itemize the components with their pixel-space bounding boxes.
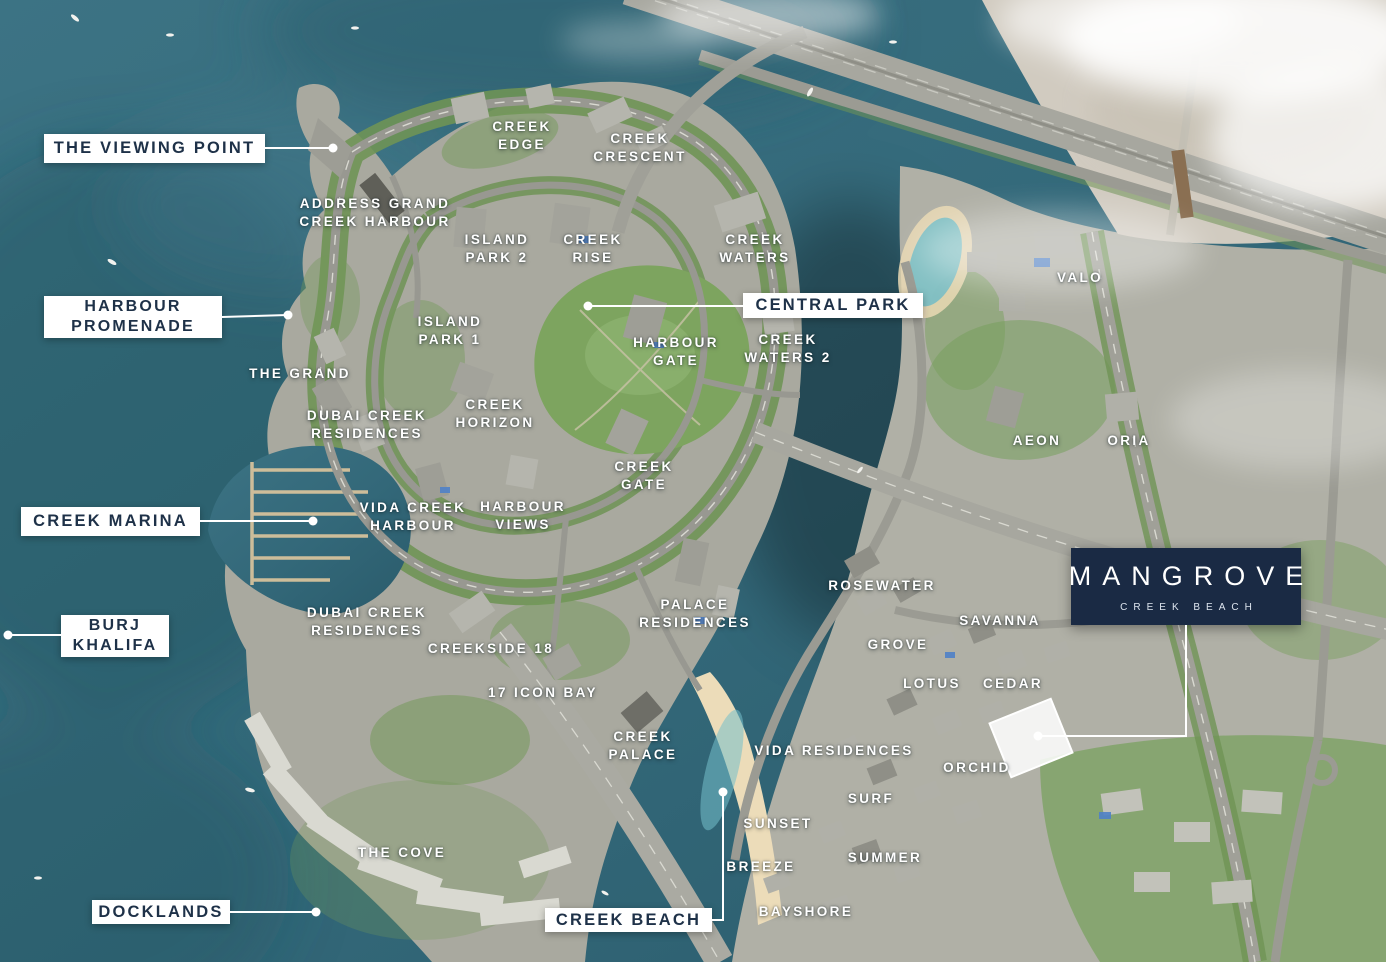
map-area-label-lotus: LOTUS	[903, 675, 961, 693]
masterplan-map: MANGROVE CREEK BEACH CREEK EDGECREEK CRE…	[0, 0, 1386, 962]
callout-creek-beach: CREEK BEACH	[545, 908, 712, 932]
map-area-label-aeon: AEON	[1013, 432, 1062, 450]
map-area-label-oria: ORIA	[1107, 432, 1150, 450]
map-area-label-address-grand-creek-harbour: ADDRESS GRAND CREEK HARBOUR	[299, 195, 450, 231]
map-area-label-palace-residences: PALACE RESIDENCES	[639, 596, 751, 632]
map-area-label-cedar: CEDAR	[983, 675, 1043, 693]
map-area-label-creek-waters-2: CREEK WATERS 2	[744, 331, 831, 367]
map-area-label-vida-residences: VIDA RESIDENCES	[754, 742, 913, 760]
map-area-label-creek-rise: CREEK RISE	[563, 231, 622, 267]
callout-central-park: CENTRAL PARK	[743, 293, 923, 318]
map-area-label-orchid: ORCHID	[943, 759, 1011, 777]
map-area-label-harbour-views: HARBOUR VIEWS	[480, 498, 566, 534]
labels-layer: MANGROVE CREEK BEACH CREEK EDGECREEK CRE…	[0, 0, 1386, 962]
mangrove-logo-box: MANGROVE CREEK BEACH	[1071, 548, 1301, 625]
map-area-label-rosewater: ROSEWATER	[828, 577, 936, 595]
map-area-label-dubai-creek-residences-south: DUBAI CREEK RESIDENCES	[307, 604, 427, 640]
map-area-label-grove: GROVE	[868, 636, 929, 654]
map-area-label-creek-edge: CREEK EDGE	[492, 118, 551, 154]
map-area-label-the-grand: THE GRAND	[249, 365, 351, 383]
callout-creek-marina: CREEK MARINA	[21, 507, 200, 536]
map-area-label-island-park-2: ISLAND PARK 2	[465, 231, 530, 267]
map-area-label-17-icon-bay: 17 ICON BAY	[488, 684, 598, 702]
map-area-label-savanna: SAVANNA	[959, 612, 1041, 630]
map-area-label-creek-palace: CREEK PALACE	[609, 728, 678, 764]
map-area-label-bayshore: BAYSHORE	[759, 903, 853, 921]
map-area-label-sunset: SUNSET	[743, 815, 812, 833]
map-area-label-the-cove: THE COVE	[358, 844, 446, 862]
map-area-label-summer: SUMMER	[848, 849, 922, 867]
callout-harbour-promenade: HARBOUR PROMENADE	[44, 296, 222, 338]
map-area-label-island-park-1: ISLAND PARK 1	[418, 313, 483, 349]
map-area-label-surf: SURF	[848, 790, 894, 808]
mangrove-logo-subtitle: CREEK BEACH	[1114, 602, 1258, 613]
callout-docklands: DOCKLANDS	[92, 900, 230, 924]
map-area-label-creekside-18: CREEKSIDE 18	[428, 640, 554, 658]
map-area-label-harbour-gate: HARBOUR GATE	[633, 334, 719, 370]
map-area-label-creek-waters: CREEK WATERS	[719, 231, 790, 267]
map-area-label-creek-gate: CREEK GATE	[614, 458, 673, 494]
map-area-label-valo: VALO	[1057, 269, 1103, 287]
map-area-label-dubai-creek-residences-north: DUBAI CREEK RESIDENCES	[307, 407, 427, 443]
mangrove-logo-title: MANGROVE	[1058, 561, 1315, 592]
map-area-label-breeze: BREEZE	[726, 858, 795, 876]
map-area-label-creek-crescent: CREEK CRESCENT	[593, 130, 686, 166]
callout-burj-khalifa: BURJ KHALIFA	[61, 615, 169, 657]
callout-the-viewing-point: THE VIEWING POINT	[44, 134, 265, 163]
map-area-label-vida-creek-harbour: VIDA CREEK HARBOUR	[360, 499, 467, 535]
map-area-label-creek-horizon: CREEK HORIZON	[455, 396, 534, 432]
